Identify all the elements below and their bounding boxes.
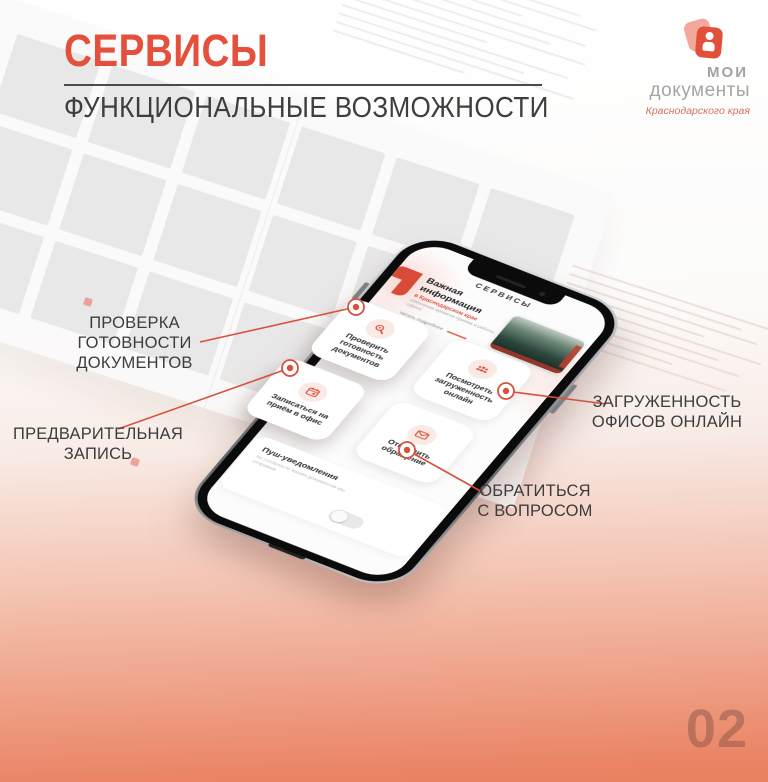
office-sign [558, 345, 582, 369]
toggle-knob [328, 508, 351, 524]
slide: СЕРВИСЫ ФУНКЦИОНАЛЬНЫЕ ВОЗМОЖНОСТИ МОИ д… [0, 0, 768, 782]
callout-label-office-load: ЗАГРУЖЕННОСТЬ ОФИСОВ ОНЛАЙН [572, 392, 762, 432]
brand-name-bottom: документы [600, 80, 750, 102]
phone-frame: СЕРВИСЫ Важная информация в Краснодарско… [178, 227, 635, 595]
brand-name-top: МОИ [600, 64, 748, 81]
page-title: СЕРВИСЫ [64, 28, 268, 73]
callout-label-check-readiness: ПРОВЕРКА ГОТОВНОСТИ ДОКУМЕНТОВ [32, 313, 237, 373]
brand-logo: МОИ документы Краснодарского края [600, 20, 750, 117]
camera-icon [538, 291, 546, 297]
brand-region: Краснодарского края [600, 105, 750, 117]
phone-bezel: СЕРВИСЫ Важная информация в Краснодарско… [182, 230, 630, 592]
callout-line2: ЗАПИСЬ [8, 444, 188, 464]
callout-line1: ЗАГРУЖЕННОСТЬ [572, 392, 762, 412]
speaker-icon [495, 275, 526, 289]
title-divider [64, 84, 542, 86]
page-subtitle: ФУНКЦИОНАЛЬНЫЕ ВОЗМОЖНОСТИ [64, 92, 549, 125]
callout-line2: ОФИСОВ ОНЛАЙН [572, 412, 762, 432]
callout-label-send-request: ОБРАТИТЬСЯ С ВОПРОСОМ [460, 481, 610, 521]
page-number: 02 [686, 698, 748, 760]
callout-line1: ПРЕДВАРИТЕЛЬНАЯ [8, 424, 188, 444]
callout-label-pre-booking: ПРЕДВАРИТЕЛЬНАЯ ЗАПИСЬ [8, 424, 188, 464]
callout-line2: ДОКУМЕНТОВ [32, 353, 237, 373]
callout-line1: ПРОВЕРКА ГОТОВНОСТИ [32, 313, 237, 353]
phone-mockup: СЕРВИСЫ Важная информация в Краснодарско… [178, 227, 635, 595]
push-toggle[interactable] [326, 507, 367, 530]
callout-line2: С ВОПРОСОМ [460, 501, 610, 521]
callout-line1: ОБРАТИТЬСЯ [460, 481, 610, 501]
my-documents-logo-icon [684, 20, 728, 64]
link-dash [447, 330, 467, 339]
